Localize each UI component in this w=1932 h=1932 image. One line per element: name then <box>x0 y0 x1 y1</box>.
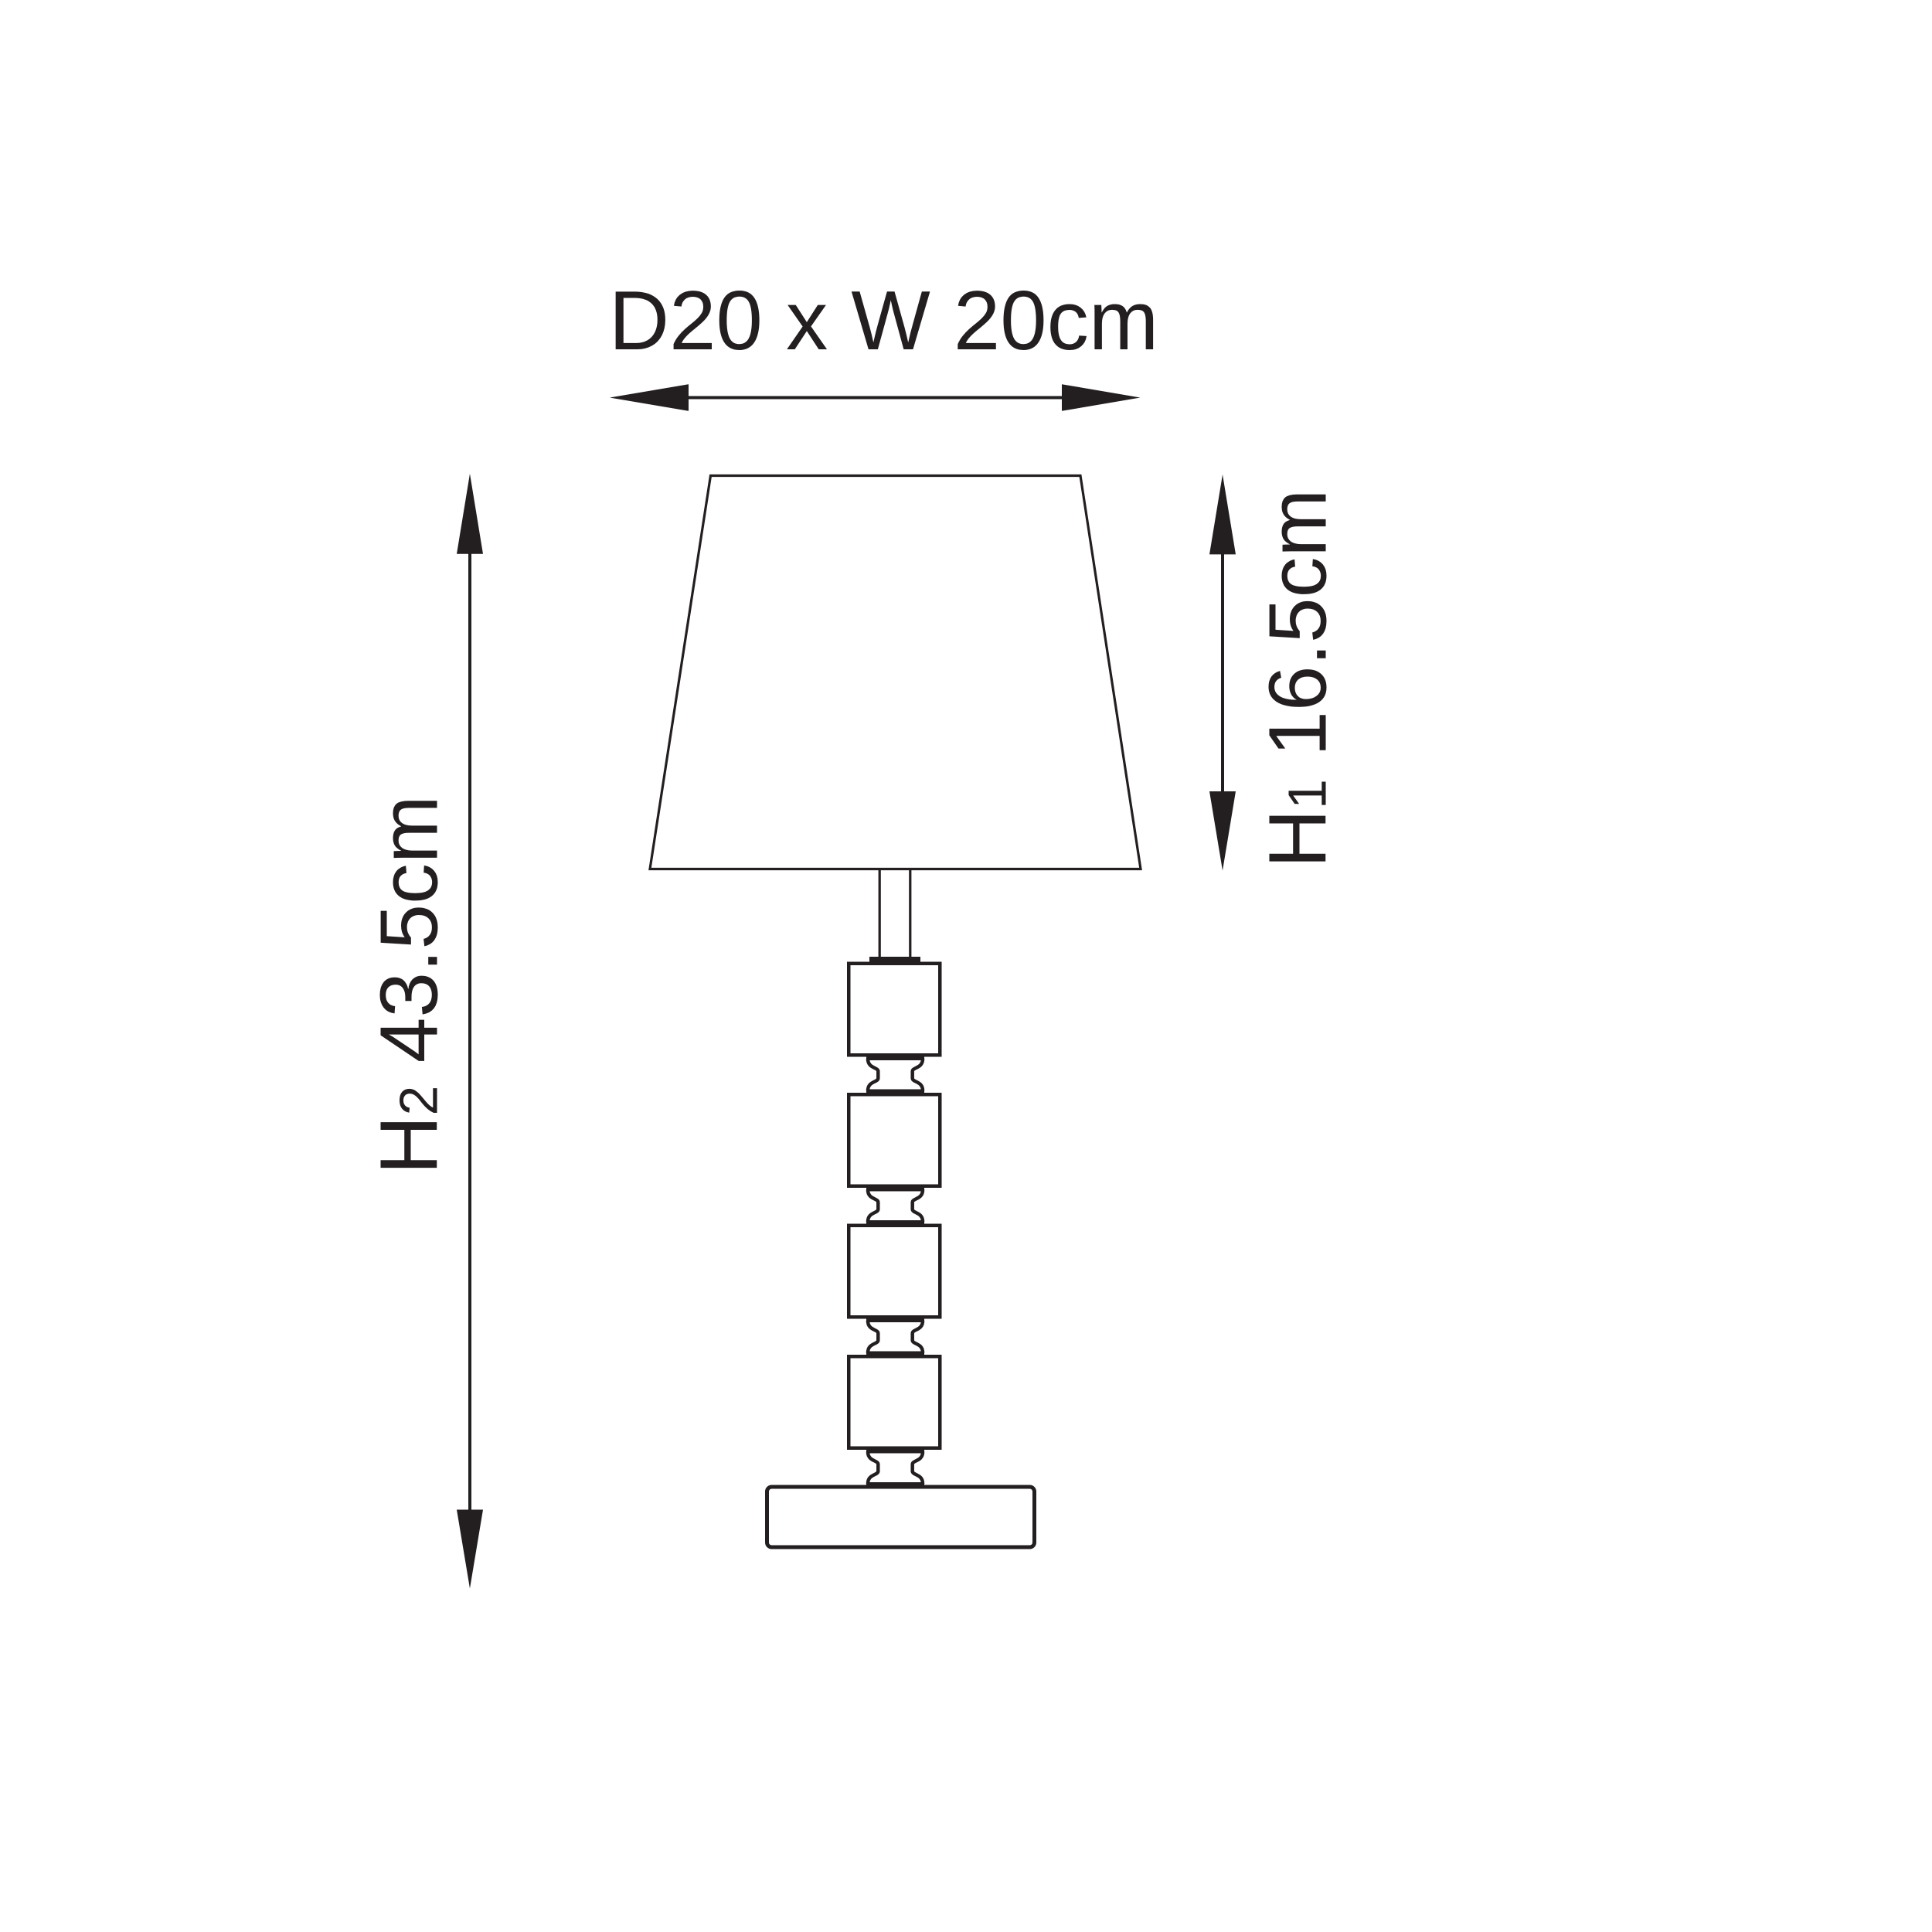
svg-text:H1 16.5cm: H1 16.5cm <box>1253 489 1344 868</box>
svg-text:H2 43.5cm: H2 43.5cm <box>364 795 455 1174</box>
svg-text:D20 x W 20cm: D20 x W 20cm <box>609 274 1158 367</box>
